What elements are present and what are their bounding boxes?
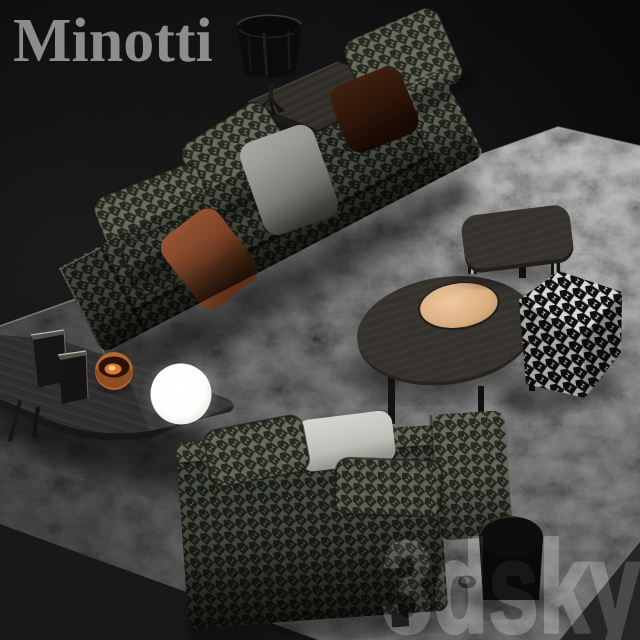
svg-text:3dsky: 3dsky bbox=[382, 514, 640, 640]
svg-text:Minotti: Minotti bbox=[13, 7, 213, 75]
